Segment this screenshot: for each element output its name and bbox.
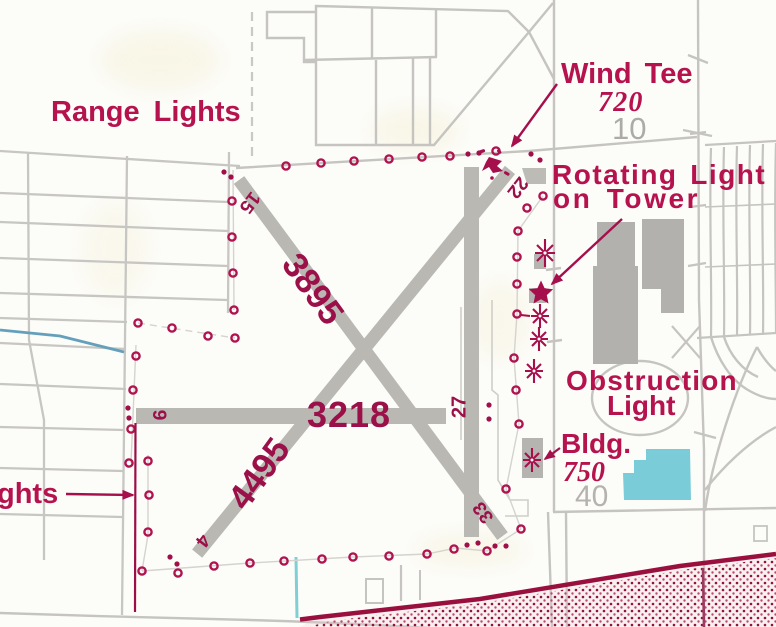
svg-text:40: 40 [575,480,608,513]
svg-text:3218: 3218 [307,394,391,435]
svg-text:Light: Light [607,390,675,421]
svg-text:Range Lights: Range Lights [51,96,241,128]
svg-text:on Tower: on Tower [553,183,700,214]
svg-text:ghts: ghts [0,478,58,510]
svg-text:10: 10 [612,111,646,146]
svg-text:Wind Tee: Wind Tee [561,58,692,90]
svg-text:Bldg.: Bldg. [561,428,631,459]
svg-text:27: 27 [448,396,470,418]
svg-text:9: 9 [148,410,169,421]
